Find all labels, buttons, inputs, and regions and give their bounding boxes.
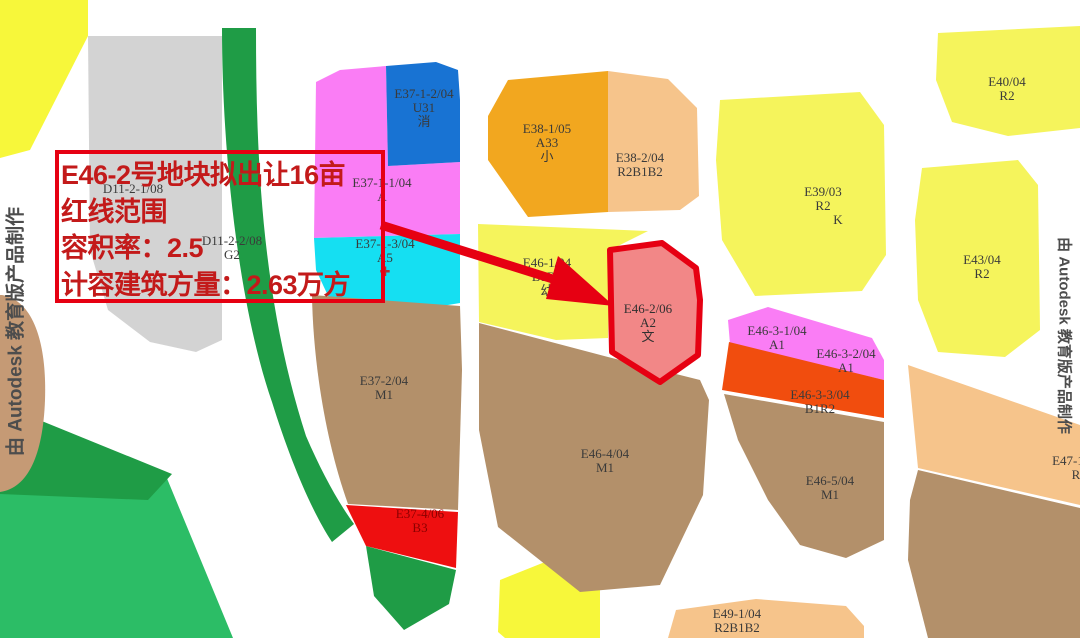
arrow-shaft bbox=[381, 225, 578, 287]
annotation-line-2: 红线范围 bbox=[61, 194, 381, 231]
annotation-text: E46-2号地块拟出让16亩 红线范围 容积率：2.5 计容建筑方量：2.63万… bbox=[61, 157, 381, 303]
zoning-map: D11-2-1/08 D11-2-2/08 G2 E37-1-2/04 U31 … bbox=[0, 0, 1080, 638]
annotation-line-4: 计容建筑方量：2.63万方 bbox=[61, 267, 381, 304]
arrow-head-icon bbox=[546, 256, 614, 306]
annotation-line-3: 容积率：2.5 bbox=[61, 230, 381, 267]
annotation-overlay-svg bbox=[0, 0, 1080, 638]
red-line-boundary bbox=[610, 243, 700, 382]
annotation-line-1: E46-2号地块拟出让16亩 bbox=[61, 157, 381, 194]
